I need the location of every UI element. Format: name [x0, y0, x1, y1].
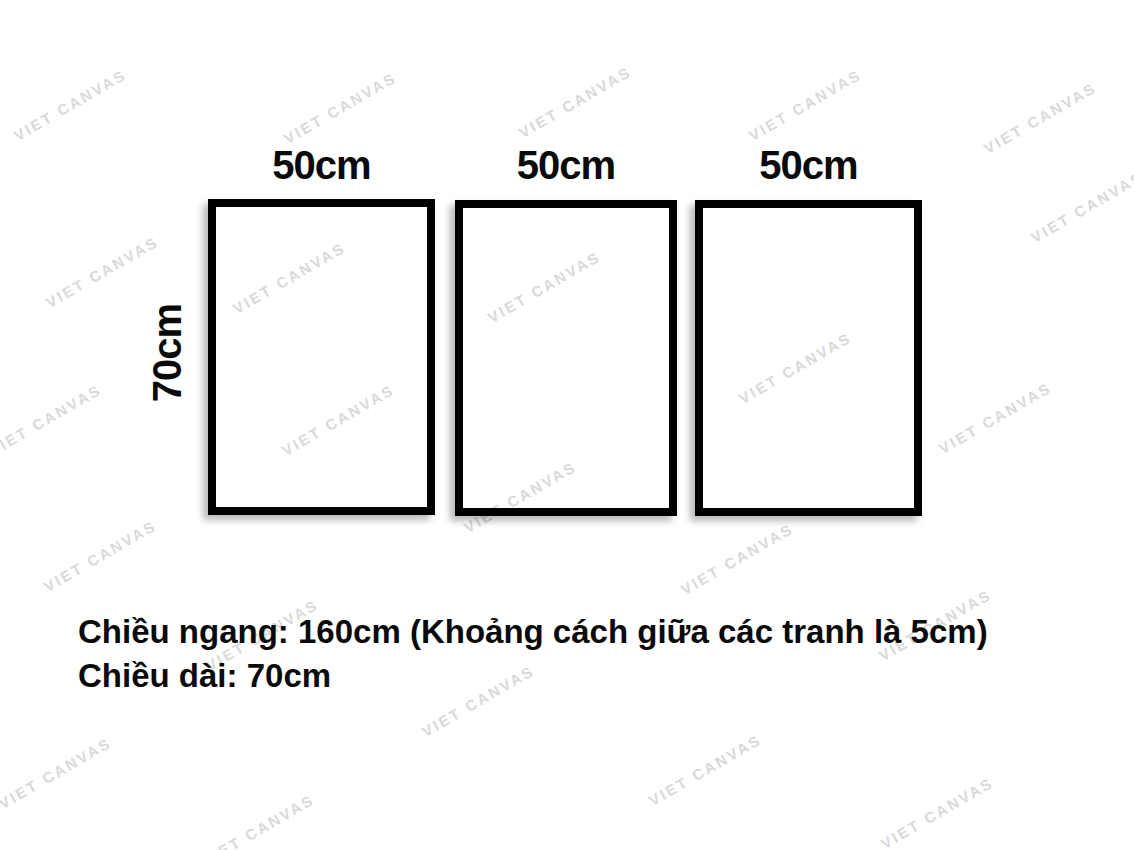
watermark-text: VIET CANVAS: [981, 79, 1100, 157]
watermark-text: VIET CANVAS: [646, 731, 765, 809]
canvas-size-diagram: VIET CANVASVIET CANVASVIET CANVASVIET CA…: [0, 0, 1134, 850]
watermark-text: VIET CANVAS: [936, 379, 1055, 457]
watermark-text: VIET CANVAS: [1028, 168, 1134, 246]
watermark-text: VIET CANVAS: [43, 233, 162, 311]
watermark-text: VIET CANVAS: [0, 734, 114, 812]
watermark-text: VIET CANVAS: [746, 66, 865, 144]
watermark-text: VIET CANVAS: [0, 381, 104, 459]
frame-2-width-label: 50cm: [455, 143, 677, 187]
caption-line-horizontal: Chiều ngang: 160cm (Khoảng cách giữa các…: [78, 610, 988, 654]
watermark-text: VIET CANVAS: [281, 69, 400, 147]
frame-2: [455, 200, 677, 516]
frame-1: [208, 199, 435, 515]
watermark-text: VIET CANVAS: [678, 520, 797, 598]
caption-line-vertical: Chiều dài: 70cm: [78, 654, 988, 698]
watermark-text: VIET CANVAS: [878, 774, 997, 850]
watermark-text: VIET CANVAS: [11, 66, 130, 144]
frame-1-width-label: 50cm: [208, 143, 435, 187]
watermark-text: VIET CANVAS: [516, 63, 635, 141]
dimensions-caption: Chiều ngang: 160cm (Khoảng cách giữa các…: [78, 610, 988, 698]
frame-3: [695, 200, 922, 516]
frame-3-width-label: 50cm: [695, 143, 922, 187]
frame-height-label: 70cm: [145, 304, 190, 402]
watermark-text: VIET CANVAS: [199, 791, 318, 850]
watermark-text: VIET CANVAS: [41, 517, 160, 595]
